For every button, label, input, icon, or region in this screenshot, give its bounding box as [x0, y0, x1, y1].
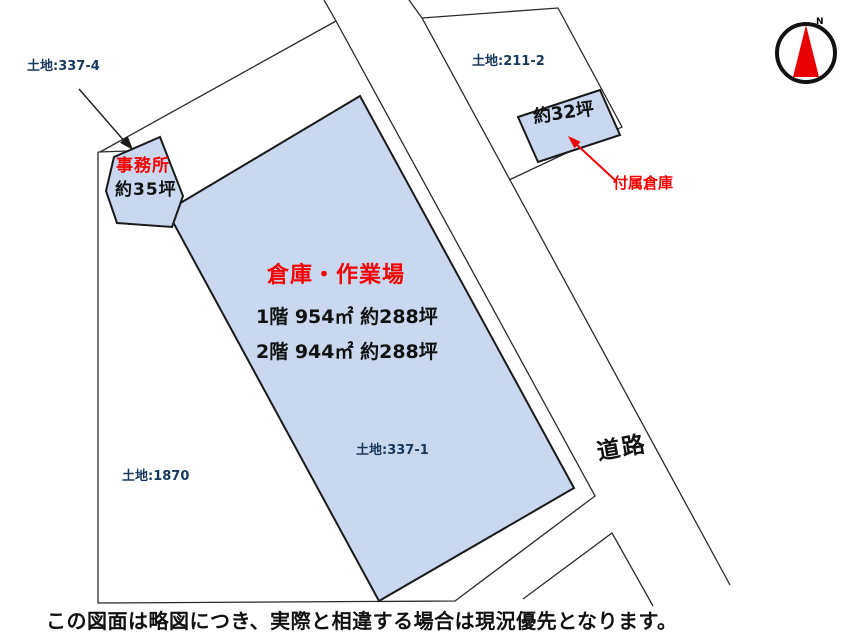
- office-name-label: 事務所: [116, 157, 170, 177]
- compass-north-letter: N: [816, 17, 824, 27]
- leader-arrow-337-4: [79, 89, 133, 150]
- warehouse-floor1-label: 1階 954㎡ 約288坪: [256, 307, 438, 329]
- south-block-corner: [523, 533, 653, 606]
- parcel-label-1870: 土地:1870: [122, 470, 189, 485]
- leader-line-red: [575, 143, 616, 181]
- parcel-label-211-2: 土地:211-2: [472, 55, 545, 70]
- parcel-label-337-1: 土地:337-1: [356, 444, 429, 459]
- compass-north-icon: [777, 24, 835, 82]
- office-area-label: 約35坪: [115, 181, 177, 201]
- site-plan: 土地:337-4 事務所 約35坪 倉庫・作業場 1階 954㎡ 約288坪 2…: [0, 0, 850, 643]
- parcel-label-337-4: 土地:337-4: [27, 60, 100, 75]
- footnote-text: この図面は略図につき、実際と相違する場合は現況優先となります。: [46, 610, 678, 633]
- leader-line: [79, 89, 126, 143]
- annex-name-label: 付属倉庫: [613, 175, 673, 192]
- warehouse-floor2-label: 2階 944㎡ 約288坪: [256, 342, 438, 364]
- warehouse-title-label: 倉庫・作業場: [267, 263, 405, 288]
